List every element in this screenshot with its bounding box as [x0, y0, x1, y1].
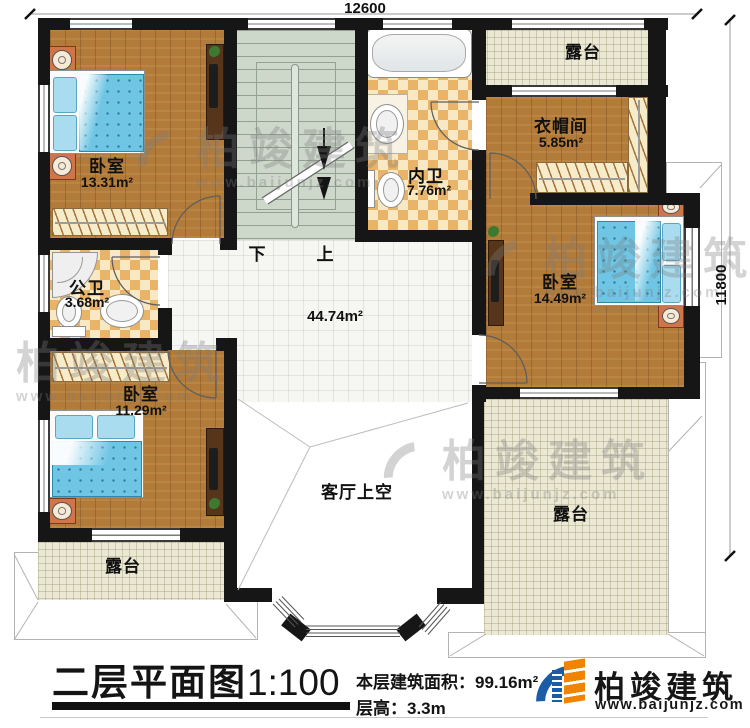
plan-linework: [0, 0, 750, 728]
dimension-right-label: 11800: [713, 250, 729, 320]
bay-window-glazing: [273, 597, 450, 637]
floor-height-label: 层高：: [356, 699, 407, 718]
floor-height-line: 层高：3.3m: [356, 694, 446, 719]
stairs-break-line: [262, 142, 354, 204]
logo-building-icon: [564, 658, 585, 703]
room-label-terrace-br: 露台: [528, 500, 614, 525]
dimension-top-label: 12600: [330, 0, 400, 17]
dimension-lines: [30, 14, 730, 556]
brand-logo-icon: [543, 658, 591, 714]
floor-area-line: 本层建筑面积：99.16m²: [356, 668, 538, 693]
room-area-bedroom-right: 14.49m²: [510, 290, 610, 306]
plan-title: 二层平面图1:100: [52, 652, 340, 706]
room-area-cloakroom: 5.85m²: [516, 134, 606, 150]
floor-area-value: 99.16m²: [475, 673, 538, 692]
room-area-hall: 44.74m²: [280, 308, 390, 325]
room-label-terrace-bl: 露台: [80, 552, 166, 577]
floor-height-value: 3.3m: [407, 699, 446, 718]
room-area-bath-inner: 7.76m²: [386, 182, 472, 198]
room-area-bath-public: 3.68m²: [46, 294, 128, 310]
plan-title-text: 二层平面图: [52, 662, 247, 703]
floor-area-label: 本层建筑面积：: [356, 673, 475, 692]
plan-scale: 1:100: [247, 662, 340, 703]
room-label-terrace-top: 露台: [540, 38, 626, 63]
brand-website: www.baijunjz.com: [595, 697, 744, 713]
room-area-bedroom-tl: 13.31m²: [52, 174, 162, 190]
stairs-down-label: 下: [244, 240, 270, 265]
stairs-up-label: 上: [312, 240, 338, 265]
room-area-bedroom-bl: 11.29m²: [86, 402, 196, 418]
logo-tower-icon: [552, 670, 562, 702]
title-underline: [52, 702, 350, 710]
floor-plan: 12600 11800 卧室 13.31m² 内卫 7.76m² 衣帽间 5.8…: [0, 0, 750, 728]
room-label-void: 客厅上空: [292, 478, 422, 503]
